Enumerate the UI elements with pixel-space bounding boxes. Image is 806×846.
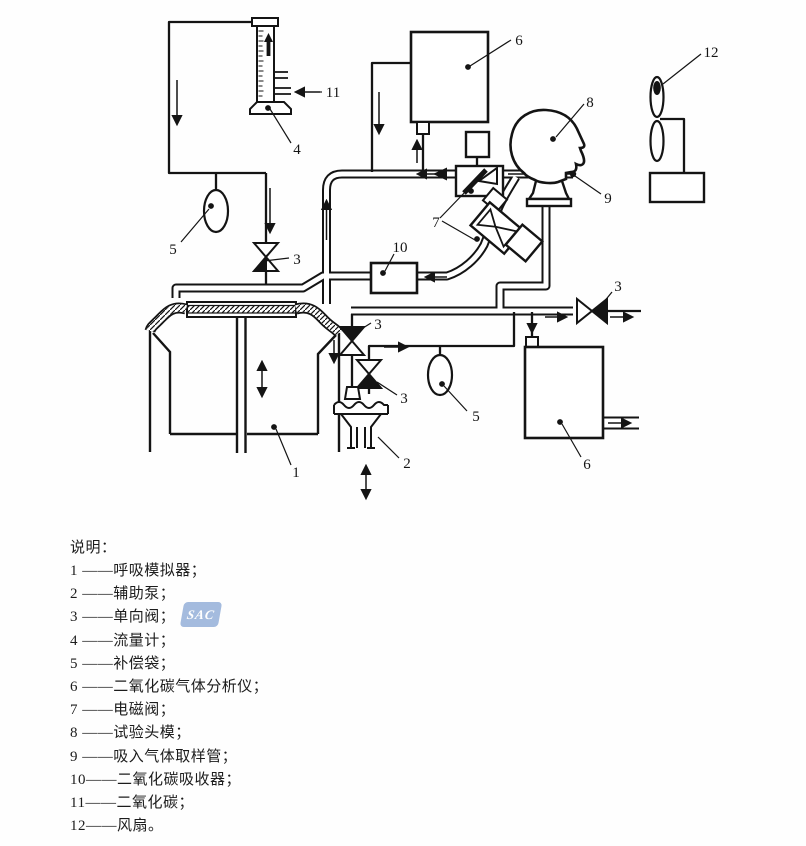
check-valve-c xyxy=(357,360,381,388)
check-valve-b xyxy=(340,327,364,355)
compensating-bag-right xyxy=(428,355,452,395)
label-analyzer-top: 6 xyxy=(515,33,523,49)
bust-base xyxy=(527,199,571,206)
breathing-simulator xyxy=(150,302,339,453)
label-sampling-tube: 9 xyxy=(604,191,612,207)
co2-analyzer-bottom-box xyxy=(525,337,603,438)
sac-watermark: SAC xyxy=(180,602,222,627)
label-flowmeter: 4 xyxy=(293,142,301,158)
label-analyzer-bottom: 6 xyxy=(583,457,591,473)
label-co2-inlet: 11 xyxy=(326,85,340,101)
label-check-valve-c: 3 xyxy=(400,391,408,407)
fan xyxy=(650,77,704,202)
label-bag-left: 5 xyxy=(169,242,177,258)
label-check-valve-a: 3 xyxy=(293,252,301,268)
label-bag-right: 5 xyxy=(472,409,480,425)
label-check-valve-d: 3 xyxy=(614,279,622,295)
label-aux-pump: 2 xyxy=(403,456,411,472)
co2-absorber-box xyxy=(371,263,417,293)
label-fan: 12 xyxy=(704,45,719,61)
label-co2-absorber: 10 xyxy=(393,240,408,256)
label-test-head: 8 xyxy=(586,95,594,111)
co2-analyzer-top-box xyxy=(411,32,488,134)
figure-page: 6 8 12 11 4 5 3 10 7 9 3 3 3 5 1 2 6 SAC… xyxy=(0,0,806,846)
label-check-valve-b: 3 xyxy=(374,317,382,333)
flowmeter xyxy=(250,18,291,114)
label-solenoid-valves: 7 xyxy=(432,215,440,231)
check-valve-d xyxy=(577,299,607,323)
schematic-diagram: 6 8 12 11 4 5 3 10 7 9 3 3 3 5 1 2 6 xyxy=(0,0,806,846)
check-valve-a xyxy=(254,243,278,271)
label-breath-simulator: 1 xyxy=(292,465,300,481)
solenoid-valve-horizontal xyxy=(456,132,503,196)
pipe-arrowhead xyxy=(433,168,447,181)
